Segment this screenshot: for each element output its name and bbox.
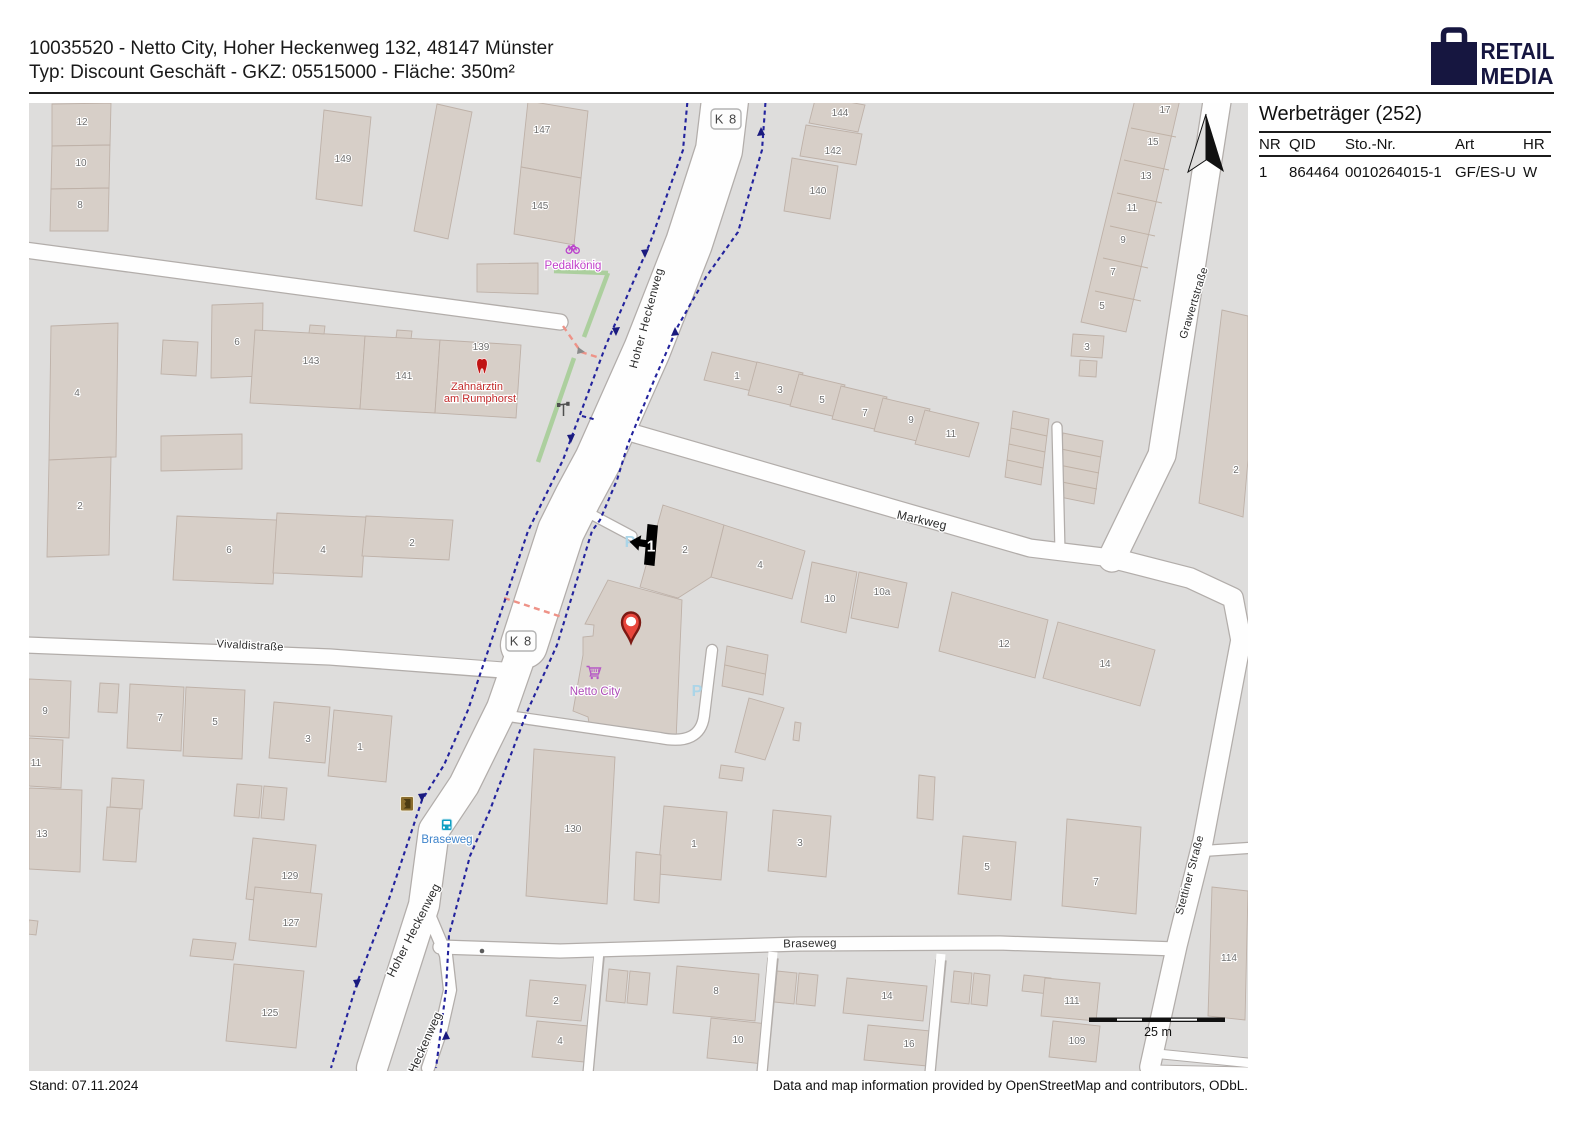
svg-text:2: 2: [77, 501, 83, 512]
svg-text:7: 7: [862, 408, 868, 419]
svg-text:K 8: K 8: [715, 112, 738, 127]
svg-text:2: 2: [682, 545, 688, 556]
svg-text:K 8: K 8: [510, 634, 533, 649]
svg-text:12: 12: [998, 639, 1010, 650]
svg-text:4: 4: [757, 560, 763, 571]
svg-text:4: 4: [320, 545, 326, 556]
svg-text:1: 1: [357, 742, 363, 753]
svg-text:9: 9: [42, 706, 48, 717]
svg-text:2: 2: [553, 996, 559, 1007]
svg-text:142: 142: [825, 146, 842, 157]
svg-text:1: 1: [647, 539, 656, 556]
svg-text:140: 140: [810, 186, 827, 197]
svg-text:10a: 10a: [874, 587, 891, 598]
svg-text:2: 2: [409, 538, 415, 549]
svg-text:9: 9: [1120, 235, 1126, 246]
svg-text:111: 111: [1064, 996, 1080, 1007]
svg-text:13: 13: [1140, 171, 1152, 182]
svg-text:9: 9: [908, 415, 914, 426]
svg-text:MEDIA: MEDIA: [1481, 63, 1554, 86]
svg-text:13: 13: [36, 829, 48, 840]
svg-text:145: 145: [532, 201, 549, 212]
svg-text:4: 4: [74, 388, 80, 399]
svg-text:Braseweg: Braseweg: [783, 938, 837, 951]
svg-text:127: 127: [283, 918, 300, 929]
svg-text:129: 129: [282, 871, 299, 882]
svg-text:10: 10: [75, 158, 87, 169]
svg-text:125: 125: [262, 1008, 279, 1019]
svg-text:1: 1: [691, 839, 697, 850]
svg-text:144: 144: [832, 108, 849, 119]
svg-text:3: 3: [777, 385, 783, 396]
svg-text:10: 10: [824, 594, 836, 605]
svg-text:139: 139: [473, 342, 490, 353]
svg-text:2: 2: [1233, 465, 1239, 476]
svg-text:15: 15: [1147, 137, 1159, 148]
svg-text:141: 141: [396, 371, 413, 382]
svg-text:6: 6: [234, 337, 240, 348]
svg-text:149: 149: [335, 154, 352, 165]
svg-text:14: 14: [881, 991, 893, 1002]
svg-text:12: 12: [76, 117, 88, 128]
svg-text:7: 7: [157, 713, 163, 724]
svg-text:Braseweg: Braseweg: [421, 834, 472, 846]
svg-text:Netto City: Netto City: [570, 686, 621, 698]
svg-text:5: 5: [212, 717, 218, 728]
svg-text:5: 5: [984, 862, 990, 873]
svg-text:1: 1: [734, 371, 740, 382]
svg-text:143: 143: [303, 356, 320, 367]
svg-text:109: 109: [1069, 1036, 1086, 1047]
svg-text:3: 3: [797, 838, 803, 849]
svg-text:P: P: [692, 683, 703, 700]
svg-text:14: 14: [1099, 659, 1111, 670]
svg-text:11: 11: [1127, 203, 1138, 214]
svg-text:130: 130: [565, 824, 582, 835]
svg-text:16: 16: [903, 1039, 915, 1050]
svg-text:3: 3: [1084, 342, 1090, 353]
svg-text:8: 8: [77, 200, 83, 211]
svg-text:RETAIL: RETAIL: [1481, 38, 1555, 64]
svg-text:114: 114: [1221, 953, 1237, 964]
svg-text:147: 147: [534, 125, 551, 136]
svg-text:8: 8: [713, 986, 719, 997]
svg-text:4: 4: [557, 1036, 563, 1047]
svg-text:5: 5: [1099, 301, 1105, 312]
svg-text:7: 7: [1093, 877, 1099, 888]
svg-text:17: 17: [1159, 105, 1171, 116]
svg-text:11: 11: [946, 429, 957, 440]
svg-text:3: 3: [305, 734, 311, 745]
svg-text:6: 6: [226, 545, 232, 556]
svg-text:11: 11: [31, 758, 42, 769]
svg-text:5: 5: [819, 395, 825, 406]
svg-text:7: 7: [1110, 267, 1116, 278]
svg-text:am Rumphorst: am Rumphorst: [444, 393, 516, 405]
svg-text:25 m: 25 m: [1144, 1025, 1172, 1039]
svg-text:Zahnärztin: Zahnärztin: [451, 381, 503, 393]
svg-text:10: 10: [732, 1035, 744, 1046]
svg-text:Pedalkönig: Pedalkönig: [545, 260, 602, 272]
